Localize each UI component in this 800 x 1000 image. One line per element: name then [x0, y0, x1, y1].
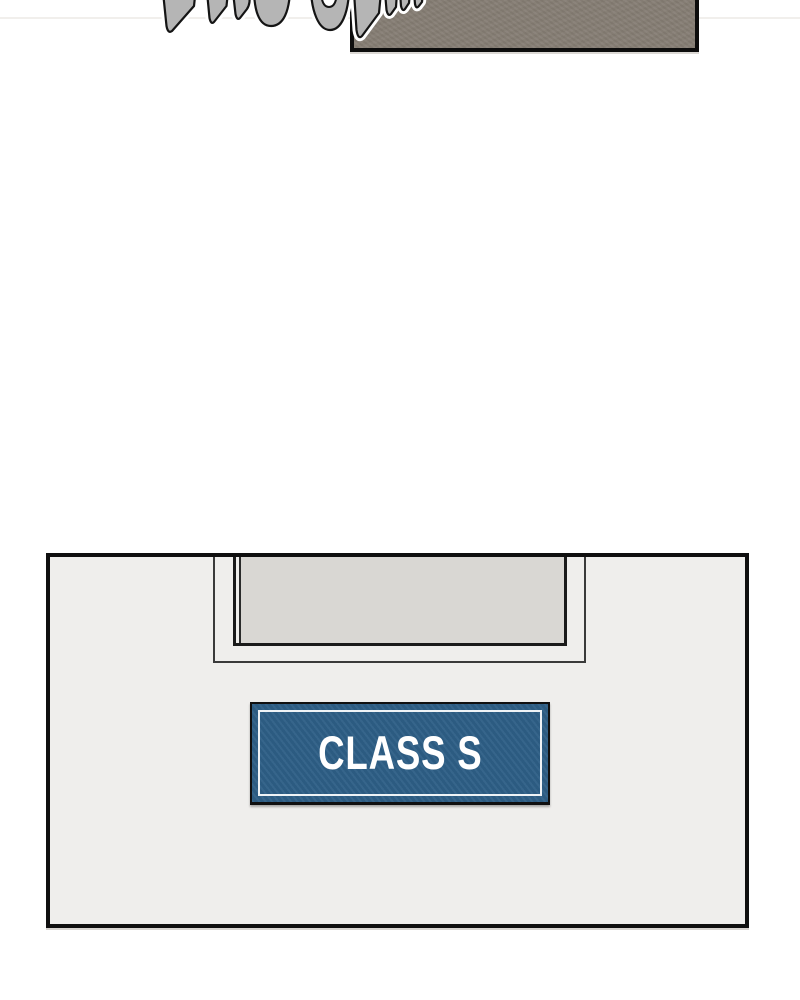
- class-s-sign-label: CLASS S: [318, 729, 482, 778]
- panel-classroom-door-wall: CLASS S: [46, 553, 749, 928]
- window-frame-line: [239, 557, 241, 643]
- door-window-glass: [233, 557, 567, 646]
- sfx-lettering-icon: [150, 0, 442, 60]
- class-s-sign: CLASS S: [250, 702, 550, 805]
- webtoon-page: CLASS S: [0, 0, 800, 1000]
- sfx-halo: [163, 0, 423, 37]
